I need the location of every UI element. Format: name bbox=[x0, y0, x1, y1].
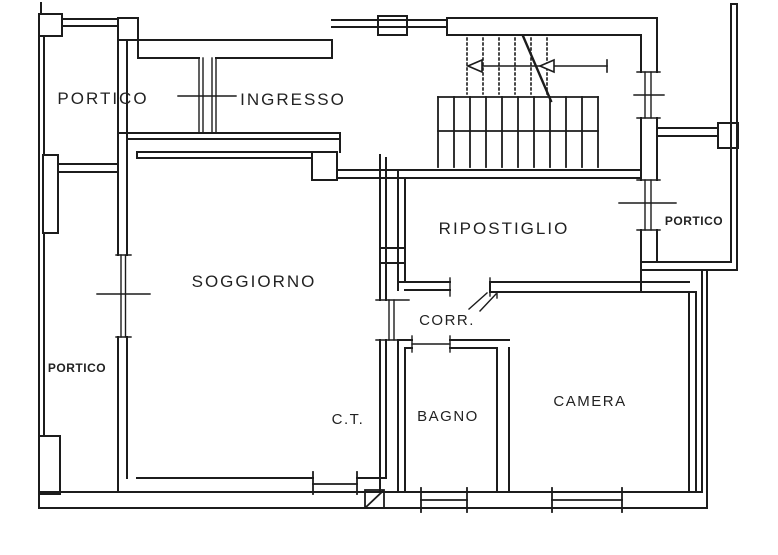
room-label-corr: CORR. bbox=[419, 312, 475, 329]
room-label-bagno: BAGNO bbox=[417, 408, 479, 425]
staircase bbox=[438, 36, 607, 167]
camera-walls bbox=[497, 292, 696, 492]
soggiorno-north-wall bbox=[118, 133, 340, 180]
ripostiglio-south-wall bbox=[398, 282, 696, 292]
window-west bbox=[97, 255, 150, 337]
pillar bbox=[39, 14, 62, 36]
room-label-ct: C.T. bbox=[332, 411, 365, 428]
middle-wall bbox=[380, 155, 405, 492]
pillar bbox=[718, 123, 738, 148]
room-label-ripostiglio: RIPOSTIGLIO bbox=[439, 219, 570, 238]
door-camera bbox=[480, 292, 497, 311]
room-label-soggiorno: SOGGIORNO bbox=[192, 272, 317, 291]
pillar bbox=[39, 436, 60, 494]
window-soggiorno bbox=[313, 472, 357, 494]
pillar bbox=[118, 18, 138, 40]
door-corr-bagno bbox=[412, 336, 450, 352]
top-beam bbox=[332, 16, 447, 35]
room-label-portico-left: PORTICO bbox=[48, 361, 106, 375]
door-portico-ingresso bbox=[178, 58, 236, 133]
room-label-ingresso: INGRESSO bbox=[240, 90, 346, 109]
window-stair bbox=[634, 72, 664, 118]
pillar bbox=[378, 16, 407, 35]
stair-treads-lower bbox=[438, 97, 598, 167]
room-label-portico-top: PORTICO bbox=[57, 89, 148, 108]
pillar bbox=[43, 155, 58, 233]
walls bbox=[39, 3, 738, 508]
left-portico-structure bbox=[39, 3, 118, 508]
door-soggiorno-corr bbox=[376, 300, 409, 340]
room-label-portico-right: PORTICO bbox=[665, 214, 723, 228]
floor-plan-page: PORTICO INGRESSO RIPOSTIGLIO PORTICO POR… bbox=[0, 0, 778, 555]
pillar bbox=[312, 152, 337, 180]
room-label-camera: CAMERA bbox=[553, 393, 626, 410]
floor-plan-drawing: PORTICO INGRESSO RIPOSTIGLIO PORTICO POR… bbox=[0, 0, 778, 555]
south-wall bbox=[39, 478, 707, 508]
door-ripostiglio-corr bbox=[450, 278, 490, 309]
wall-pier bbox=[380, 248, 405, 263]
north-wall bbox=[127, 40, 332, 58]
arrow-left-icon bbox=[468, 60, 482, 72]
stair-enclosure bbox=[447, 18, 657, 292]
